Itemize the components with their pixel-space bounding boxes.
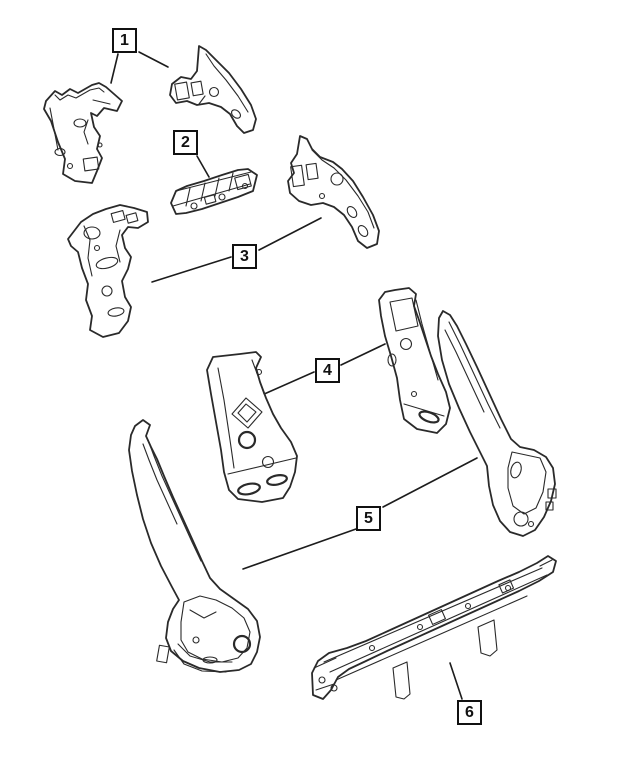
part-drawing-4-right	[379, 288, 450, 433]
part-drawing-5-right	[438, 311, 556, 536]
callout-4[interactable]: 4	[315, 358, 340, 383]
callout-6[interactable]: 6	[457, 700, 482, 725]
leader-line-5-right	[383, 458, 477, 507]
leader-line-5-left	[243, 529, 356, 569]
part-drawing-1-right	[170, 46, 256, 133]
part-drawing-1-left	[44, 83, 122, 183]
leader-line-4-right	[341, 344, 385, 365]
callout-5-label: 5	[364, 510, 373, 528]
leader-line-2	[197, 156, 209, 177]
callout-1-label: 1	[120, 32, 129, 50]
callout-2[interactable]: 2	[173, 130, 198, 155]
part-drawing-3-left	[68, 205, 148, 337]
callout-4-label: 4	[323, 362, 332, 380]
callout-6-label: 6	[465, 704, 474, 722]
callout-2-label: 2	[181, 134, 190, 152]
leader-line-4-left	[262, 372, 314, 395]
leader-line-3-right	[259, 218, 321, 250]
callout-3-label: 3	[240, 248, 249, 266]
part-drawing-6	[312, 556, 556, 699]
leader-line-6	[450, 663, 462, 699]
leader-line-3-left	[152, 257, 231, 282]
callout-5[interactable]: 5	[356, 506, 381, 531]
parts-illustration	[0, 0, 640, 777]
callout-3[interactable]: 3	[232, 244, 257, 269]
part-drawing-2	[171, 169, 257, 214]
part-drawing-3-right	[288, 136, 379, 248]
leader-line-1-right	[139, 52, 168, 67]
leader-line-1-left	[111, 54, 118, 83]
callout-1[interactable]: 1	[112, 28, 137, 53]
diagram-canvas: 1 2 3 4 5 6	[0, 0, 640, 777]
part-drawing-4-left	[207, 352, 297, 502]
